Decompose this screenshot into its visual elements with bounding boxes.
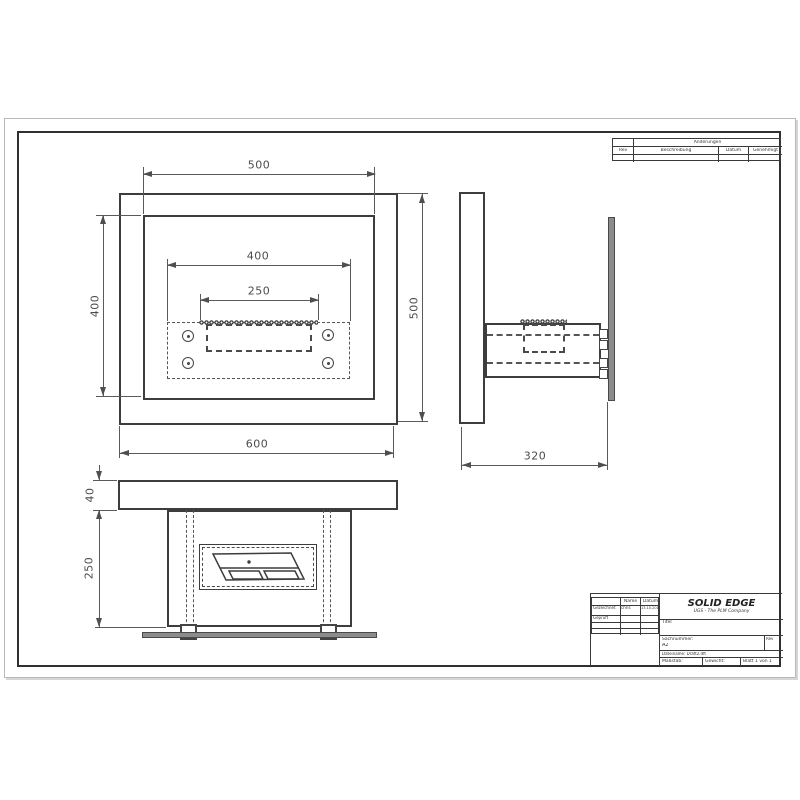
partno-label: Sachnummer: (662, 637, 762, 642)
partno-value: A2 (662, 643, 762, 649)
revision-col-approved: Genehmigt (749, 148, 782, 153)
bottom-view-base-plate (142, 632, 377, 638)
side-view-wall-plate (608, 217, 615, 401)
side-view-bolt (599, 340, 608, 350)
side-view-bolt (599, 329, 608, 339)
brand-logo-text: SOLID EDGE (660, 598, 783, 609)
scale-label: Maßstab: (662, 659, 700, 664)
brand-banner: SOLID EDGE UGS - The PLM Company (660, 594, 783, 620)
dim-arrow (96, 471, 102, 480)
scale-row: Maßstab: Gewicht: Blatt 1 von 1 (660, 658, 783, 666)
sheet-label: Blatt 1 von 1 (743, 659, 782, 664)
ext-line (96, 396, 141, 397)
dim-front-top-width: 500 (248, 159, 271, 172)
front-view-hole-bottom-right (322, 357, 334, 369)
bottom-view-burner-tray (200, 545, 316, 589)
approval-col-name: Name (621, 599, 640, 604)
side-view-bolt (599, 369, 608, 379)
side-view-bolt (599, 358, 608, 368)
dim-bottom-body-height: 250 (83, 557, 96, 580)
dim-front-right-height: 500 (408, 297, 421, 320)
ext-line (93, 480, 117, 481)
title-block: Name Datum Gezeichnet chris 13.10.2011 G… (590, 593, 782, 666)
partno-row: Sachnummer: A2 Rev (660, 636, 783, 651)
brand-subtitle: UGS - The PLM Company (660, 609, 783, 614)
dim-line (99, 510, 100, 627)
approval-table: Name Datum Gezeichnet chris 13.10.2011 G… (591, 597, 659, 634)
dim-arrow (419, 194, 425, 203)
dim-front-plate-width: 400 (247, 250, 270, 263)
dim-arrow (342, 262, 351, 268)
dim-arrow (143, 171, 152, 177)
bottom-view-hidden-column (193, 510, 194, 632)
filename-row: Dateiname: Draft2.dft (660, 651, 783, 658)
ext-line (398, 421, 428, 422)
dim-line (462, 465, 607, 466)
dim-line (422, 194, 423, 421)
ext-line (607, 402, 608, 470)
weight-label: Gewicht: (705, 659, 739, 664)
dim-line (143, 174, 375, 175)
dim-arrow (100, 387, 106, 396)
bottom-view-tray-frame (199, 544, 317, 590)
side-view-panel-rect (459, 192, 485, 424)
title-block-right: SOLID EDGE UGS - The PLM Company Titel S… (659, 594, 783, 666)
approval-drawn-name: chris (621, 606, 640, 611)
side-view-hidden-slot-rect (523, 324, 565, 353)
dim-arrow (96, 510, 102, 519)
revision-col-description: Beschreibung (634, 148, 718, 153)
filename-label: Dateiname: Draft2.dft (662, 652, 780, 657)
revision-table-header: Änderungen (634, 140, 781, 145)
bottom-view-top-bar (118, 480, 398, 510)
ext-line (167, 259, 168, 321)
bottom-view-hidden-column (186, 510, 187, 632)
dim-line (200, 300, 318, 301)
dim-arrow (167, 262, 176, 268)
rev-cell: Rev (764, 636, 784, 650)
dim-line (120, 453, 394, 454)
front-view-hole-top-right (322, 329, 334, 341)
dim-front-slot-width: 250 (248, 285, 271, 298)
dim-arrow (200, 297, 209, 303)
dim-front-left-height: 400 (89, 295, 102, 318)
approval-drawn-date: 13.10.2011 (641, 606, 660, 610)
revision-col-date: Datum (719, 148, 748, 153)
dim-arrow (385, 450, 394, 456)
revision-table: Änderungen Rev Beschreibung Datum Genehm… (612, 138, 781, 161)
dim-side-depth: 320 (524, 450, 547, 463)
revision-col-rev: Rev (613, 148, 633, 153)
dim-arrow (598, 462, 607, 468)
title-row: Titel (660, 619, 783, 636)
dim-bottom-top-thickness: 40 (84, 488, 97, 503)
dim-arrow (120, 450, 129, 456)
front-view-hidden-slot-rect (206, 324, 312, 352)
approval-row-drawn: Gezeichnet (593, 606, 620, 611)
front-view-hole-top-left (182, 330, 194, 342)
bottom-view-hidden-column (323, 510, 324, 632)
dim-arrow (96, 618, 102, 627)
front-view-serrated-strip (199, 320, 318, 325)
ext-line (95, 627, 166, 628)
side-view-serrated-strip (520, 319, 567, 324)
front-view-hole-bottom-left (182, 357, 194, 369)
dim-arrow (100, 215, 106, 224)
dim-line (167, 265, 350, 266)
title-label: Titel (662, 620, 722, 625)
rev-label: Rev (766, 637, 783, 642)
approval-col-date: Datum (641, 599, 660, 604)
dim-arrow (367, 171, 376, 177)
bottom-view-hidden-column (330, 510, 331, 632)
side-view-hidden-line-lower (487, 362, 599, 364)
dim-arrow (462, 462, 471, 468)
drawing-page: 500 400 250 400 500 600 320 (0, 0, 800, 800)
dim-front-bottom-width: 600 (246, 438, 269, 451)
dim-arrow (419, 412, 425, 421)
dim-line (103, 215, 104, 396)
approval-row-checked: Geprüft (593, 616, 620, 621)
ext-line (350, 259, 351, 321)
dim-arrow (310, 297, 319, 303)
